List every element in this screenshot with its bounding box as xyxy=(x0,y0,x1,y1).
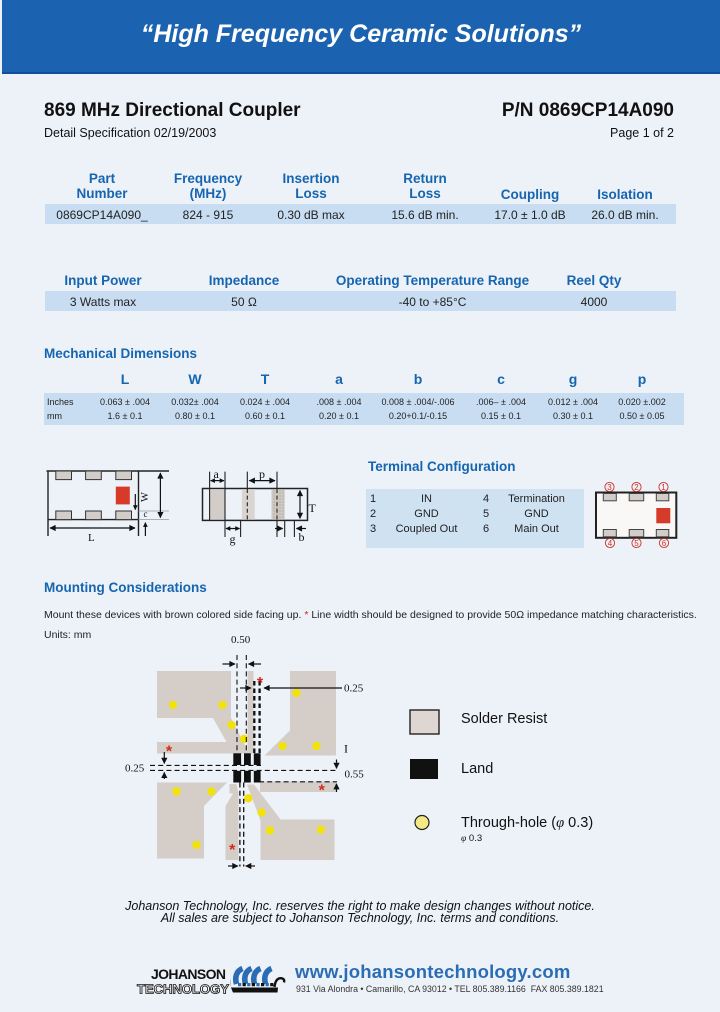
svg-text:JOHANSON: JOHANSON xyxy=(151,966,226,982)
svg-text:TECHNOLOGY: TECHNOLOGY xyxy=(137,982,229,997)
